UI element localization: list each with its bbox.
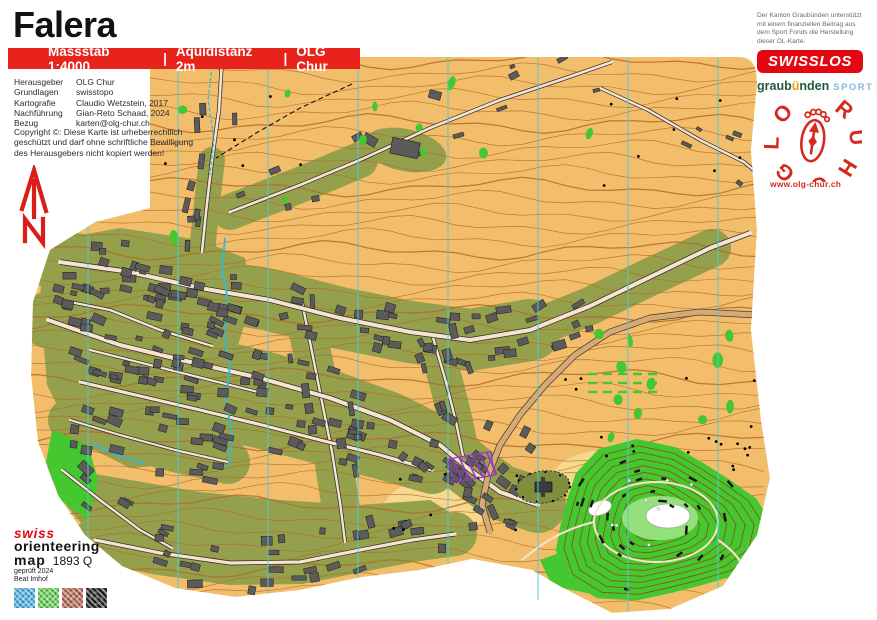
credit-label: Herausgeber (14, 77, 76, 87)
credit-value: Claudio Wetzstein, 2017 (76, 98, 168, 108)
color-patch-black (86, 588, 107, 608)
credit-label: Grundlagen (14, 87, 76, 97)
copyright-line: geschützt und darf ohne schriftliche Bew… (14, 137, 204, 147)
sponsor-note: Der Kanton Graubünden unterstützt mit ei… (757, 12, 869, 46)
color-patch-green (38, 588, 59, 608)
sport-text: SPORT (833, 82, 873, 93)
separator: | (163, 51, 167, 66)
brand-map: map (14, 553, 46, 567)
print-color-patches (14, 588, 107, 608)
color-patch-red (62, 588, 83, 608)
olg-letter: L (764, 136, 784, 150)
checked-year: geprüft 2024 (14, 568, 107, 576)
olg-letter: R (830, 96, 858, 124)
copyright-line: Copyright ©: Diese Karte ist urheberrech… (14, 127, 204, 137)
map-title: Falera (13, 4, 116, 46)
website-text: www.olg-chur.ch (770, 179, 841, 189)
copyright-line: des Herausgebers nicht kopiert werden! (14, 148, 204, 158)
credit-row: Grundlagen swisstopo (14, 87, 170, 97)
map-sheet: { "title": "Falera", "info_bar": { "scal… (0, 0, 877, 620)
olg-letter: O (768, 99, 797, 127)
credit-value: swisstopo (76, 87, 113, 97)
credit-label: Nachführung (14, 108, 76, 118)
checker-name: Beat Imhof (14, 576, 107, 584)
credit-row: Kartografie Claudio Wetzstein, 2017 (14, 98, 170, 108)
footprint-icon (799, 108, 831, 163)
swisslos-logo: SWISSLOS (757, 50, 863, 73)
credit-value: OLG Chur (76, 77, 115, 87)
credit-label: Kartografie (14, 98, 76, 108)
olg-letter: H (833, 155, 862, 181)
equidistance-label: Äquidistanz 2m (176, 44, 275, 74)
swisslos-wordmark: SWISSLOS (768, 53, 852, 70)
olg-chur-logo: O L G C H U R (764, 96, 862, 182)
info-bar: Massstab 1:4000 | Äquidistanz 2m | OLG C… (8, 48, 360, 69)
north-arrow (16, 165, 54, 249)
separator: | (283, 51, 287, 66)
map-number: 1893 Q (53, 554, 92, 568)
swiss-orienteering-map-brand: swiss orienteering map 1893 Q geprüft 20… (14, 528, 107, 608)
copyright-note: Copyright ©: Diese Karte ist urheberrech… (14, 127, 204, 158)
graubuenden-sport-logo: graubündenSPORT (757, 79, 873, 93)
brand-map-row: map 1893 Q (14, 553, 107, 568)
olg-letter: U (844, 128, 862, 146)
credits-block: Herausgeber OLG Chur Grundlagen swisstop… (14, 77, 170, 128)
scale-label: Massstab 1:4000 (48, 44, 154, 74)
graubuenden-text: graub (757, 79, 792, 93)
color-patch-blue (14, 588, 35, 608)
graubuenden-text: nden (799, 79, 829, 93)
credit-row: Nachführung Gian-Reto Schaad, 2024 (14, 108, 170, 118)
club-label: OLG Chur (296, 44, 360, 74)
credit-row: Herausgeber OLG Chur (14, 77, 170, 87)
credit-value: Gian-Reto Schaad, 2024 (76, 108, 170, 118)
